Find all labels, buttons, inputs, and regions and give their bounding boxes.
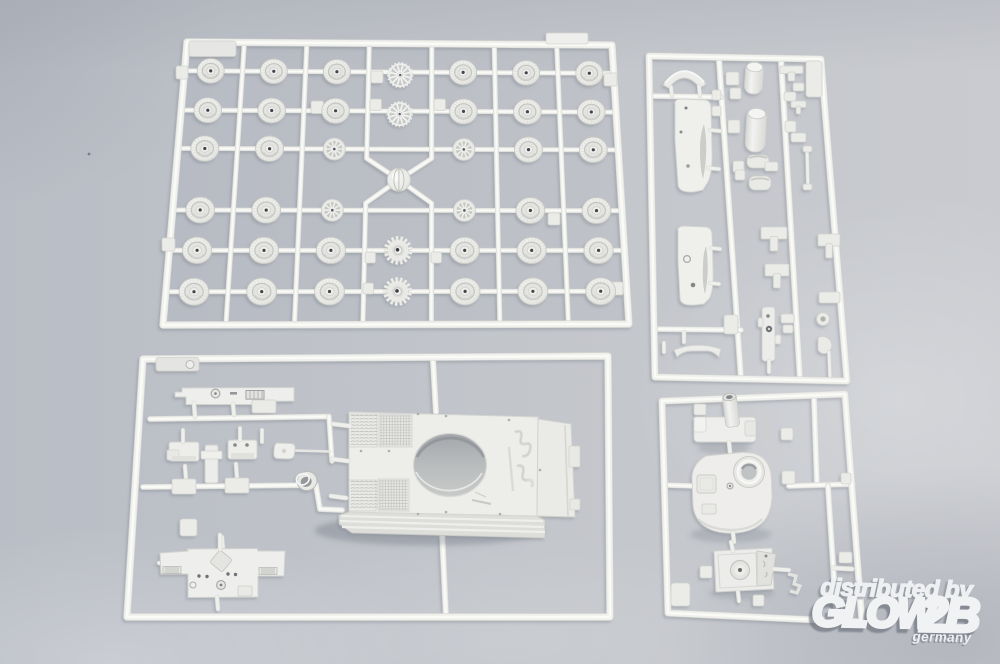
svg-text:germany: germany (911, 629, 972, 645)
